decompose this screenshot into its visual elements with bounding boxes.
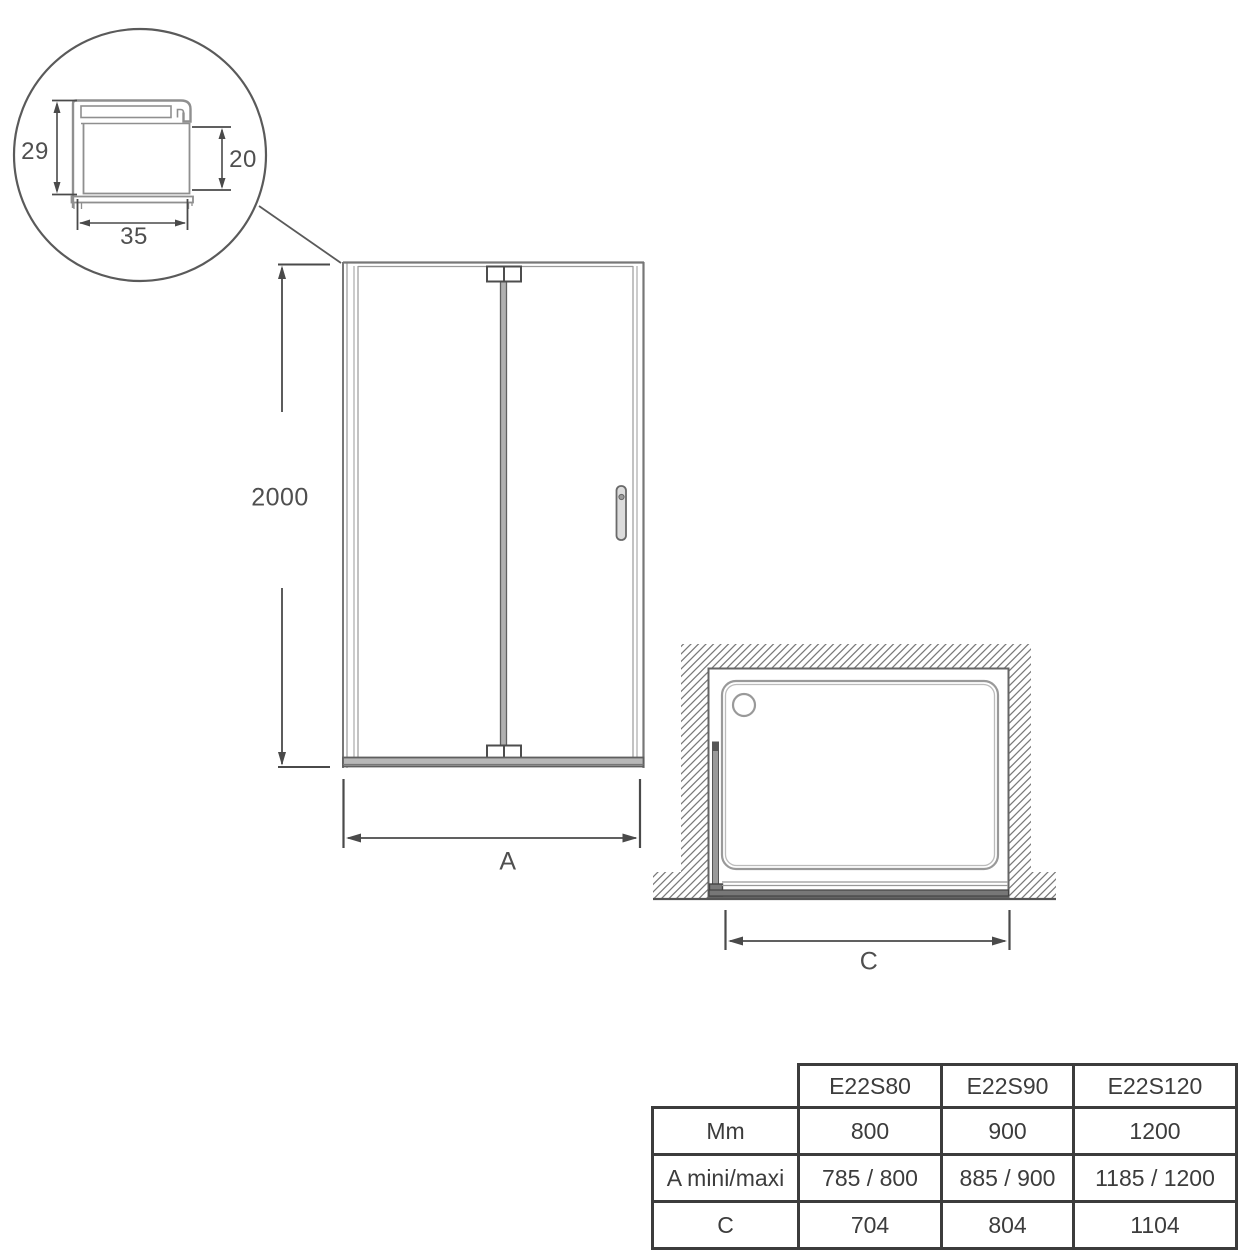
cell-mm-e22s120: 1200 (1074, 1108, 1237, 1155)
row-label-c: C (653, 1202, 799, 1249)
row-label-mm: Mm (653, 1108, 799, 1155)
table-row-mm: Mm 800 900 1200 (653, 1108, 1237, 1155)
plan-view (653, 644, 1056, 899)
drain-circle (733, 694, 755, 716)
detail-dim-35-label: 35 (120, 225, 148, 249)
cell-c-e22s120: 1104 (1074, 1202, 1237, 1249)
detail-dim-29-label: 29 (21, 140, 49, 164)
plan-dim-C-label: C (860, 950, 879, 975)
dim-A (344, 779, 641, 848)
spec-table: E22S80 E22S90 E22S120 Mm 800 900 1200 A … (651, 1063, 1238, 1250)
cell-mm-e22s90: 900 (942, 1108, 1074, 1155)
front-dim-2000-label: 2000 (251, 486, 309, 511)
detail-circle-view (14, 29, 341, 281)
spec-col-header-e22s80: E22S80 (799, 1065, 942, 1108)
top-hinge-bracket (487, 267, 521, 282)
spec-col-header-e22s120: E22S120 (1074, 1065, 1237, 1108)
spec-col-header-e22s90: E22S90 (942, 1065, 1074, 1108)
front-elevation (343, 262, 644, 768)
cell-mm-e22s80: 800 (799, 1108, 942, 1155)
fold-hinge-line (501, 267, 507, 757)
table-row-a-mini-maxi: A mini/maxi 785 / 800 885 / 900 1185 / 1… (653, 1155, 1237, 1202)
cell-a-e22s120: 1185 / 1200 (1074, 1155, 1237, 1202)
front-dim-A-label: A (499, 850, 516, 875)
dim-2000 (278, 265, 330, 768)
bottom-rail (343, 758, 644, 767)
dim-C (726, 910, 1010, 950)
cell-a-e22s90: 885 / 900 (942, 1155, 1074, 1202)
cell-c-e22s90: 804 (942, 1202, 1074, 1249)
detail-dim-20-label: 20 (229, 148, 257, 172)
leader-line (259, 206, 341, 263)
door-handle (617, 486, 627, 540)
spec-table-corner-cell (653, 1065, 799, 1108)
cell-a-e22s80: 785 / 800 (799, 1155, 942, 1202)
technical-drawing-page: 29 20 35 2000 A C E22S80 E22S90 E22S120 … (0, 0, 1257, 1257)
row-label-a-mini-maxi: A mini/maxi (653, 1155, 799, 1202)
table-row-c: C 704 804 1104 (653, 1202, 1237, 1249)
cell-c-e22s80: 704 (799, 1202, 942, 1249)
